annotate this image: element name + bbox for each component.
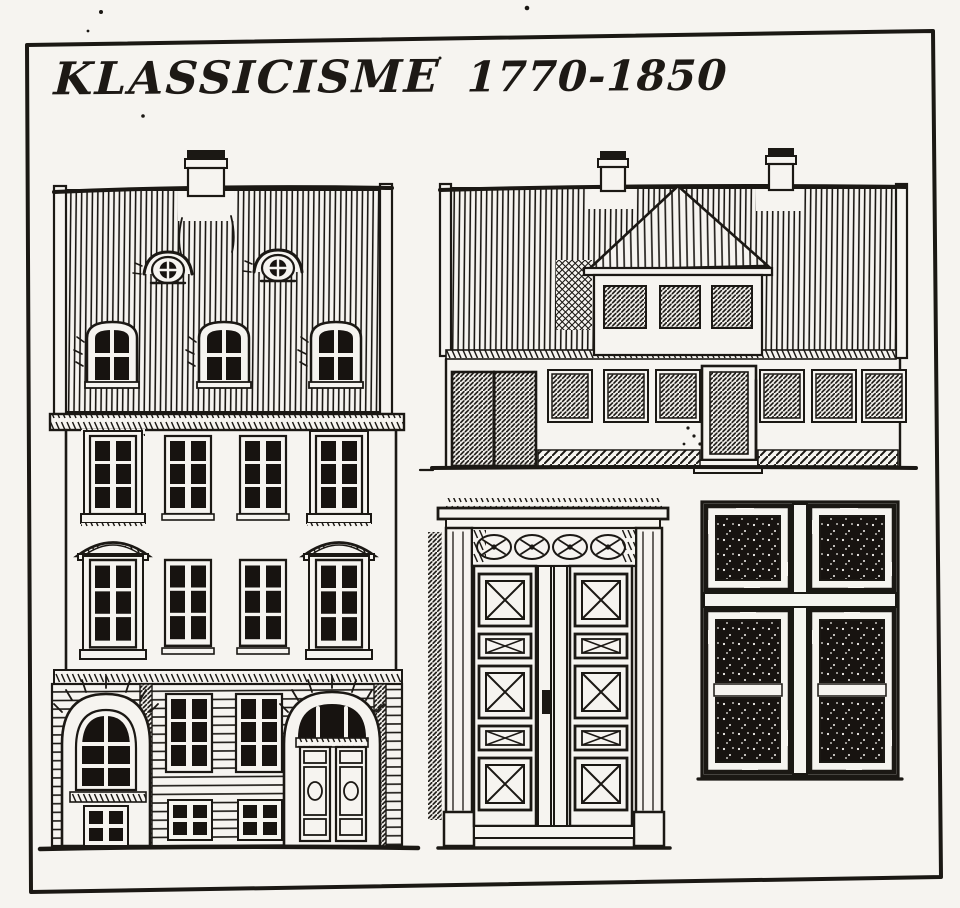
dormer-window <box>604 286 646 328</box>
roof-edge-right <box>380 184 392 414</box>
townhouse-facade <box>40 150 433 849</box>
window-sill <box>162 514 214 520</box>
style-name: KLASSICISME <box>53 50 442 106</box>
ground-floor <box>52 676 402 846</box>
window <box>656 370 700 422</box>
house-wall <box>446 359 906 473</box>
window-sill <box>81 514 145 523</box>
pilaster-base <box>444 812 474 846</box>
frame-shadow <box>428 532 442 820</box>
door-panel <box>575 634 627 658</box>
house-door <box>694 366 762 473</box>
window <box>90 436 136 514</box>
dormer-window <box>660 286 700 328</box>
basement-window <box>238 800 282 840</box>
casement <box>706 506 790 590</box>
basement-window <box>168 800 212 840</box>
window <box>90 560 136 647</box>
roof-edge-right <box>896 184 907 358</box>
casement <box>706 610 790 772</box>
window <box>165 436 211 514</box>
plinth-band <box>758 450 898 466</box>
single-storey-house <box>432 148 916 473</box>
cornice-hatch <box>446 498 662 508</box>
mullion <box>793 504 807 774</box>
door-leaves <box>474 566 632 826</box>
roof-edge-left <box>54 186 66 414</box>
door-panel <box>575 758 627 810</box>
door-panel <box>479 634 531 658</box>
window <box>316 560 362 647</box>
basement-window <box>84 806 128 846</box>
lock-plate <box>542 690 552 714</box>
door-detail <box>428 498 670 848</box>
main-cornice <box>50 414 404 430</box>
dormer-window <box>712 286 752 328</box>
window-detail <box>698 502 902 779</box>
window <box>166 694 212 772</box>
casement <box>810 506 894 590</box>
door-panel <box>575 666 627 718</box>
style-period: 1770-1850 <box>466 51 729 102</box>
door-panel <box>479 666 531 718</box>
window-sill <box>80 650 146 659</box>
door-panel <box>575 726 627 750</box>
door-panel <box>479 574 531 626</box>
window <box>165 560 211 646</box>
casement <box>810 610 894 772</box>
pilaster-base <box>634 812 664 846</box>
window-sill <box>237 514 289 520</box>
caption: KLASSICISME1770-1850 <box>53 48 729 106</box>
window <box>548 370 592 422</box>
centre-stile <box>554 566 567 826</box>
threshold <box>474 826 634 838</box>
ground-line <box>432 467 916 468</box>
door-panel <box>479 758 531 810</box>
window-sill <box>237 648 289 654</box>
plinth-band <box>538 450 700 466</box>
door-panel <box>575 574 627 626</box>
sketch-page: KLASSICISME1770-1850 <box>0 0 960 908</box>
door-panel <box>479 726 531 750</box>
piano-nobile-windows <box>77 543 375 660</box>
guilloche-frieze <box>472 528 636 566</box>
roof-edge-left <box>440 184 451 356</box>
transom <box>704 593 896 607</box>
door-cornice <box>446 519 660 528</box>
window <box>236 694 282 772</box>
window <box>760 370 804 422</box>
upper-floor-windows <box>81 429 371 529</box>
window <box>316 436 362 514</box>
townhouse-chimney <box>185 150 227 196</box>
window <box>604 370 648 422</box>
window-sill <box>306 650 372 659</box>
window <box>240 436 286 514</box>
door-cornice <box>438 508 668 519</box>
window <box>812 370 856 422</box>
window <box>240 560 286 646</box>
window <box>862 370 906 422</box>
window-sill <box>307 514 371 523</box>
window-sill <box>162 648 214 654</box>
klassicisme-illustration <box>0 0 960 908</box>
ground-line <box>40 847 418 849</box>
